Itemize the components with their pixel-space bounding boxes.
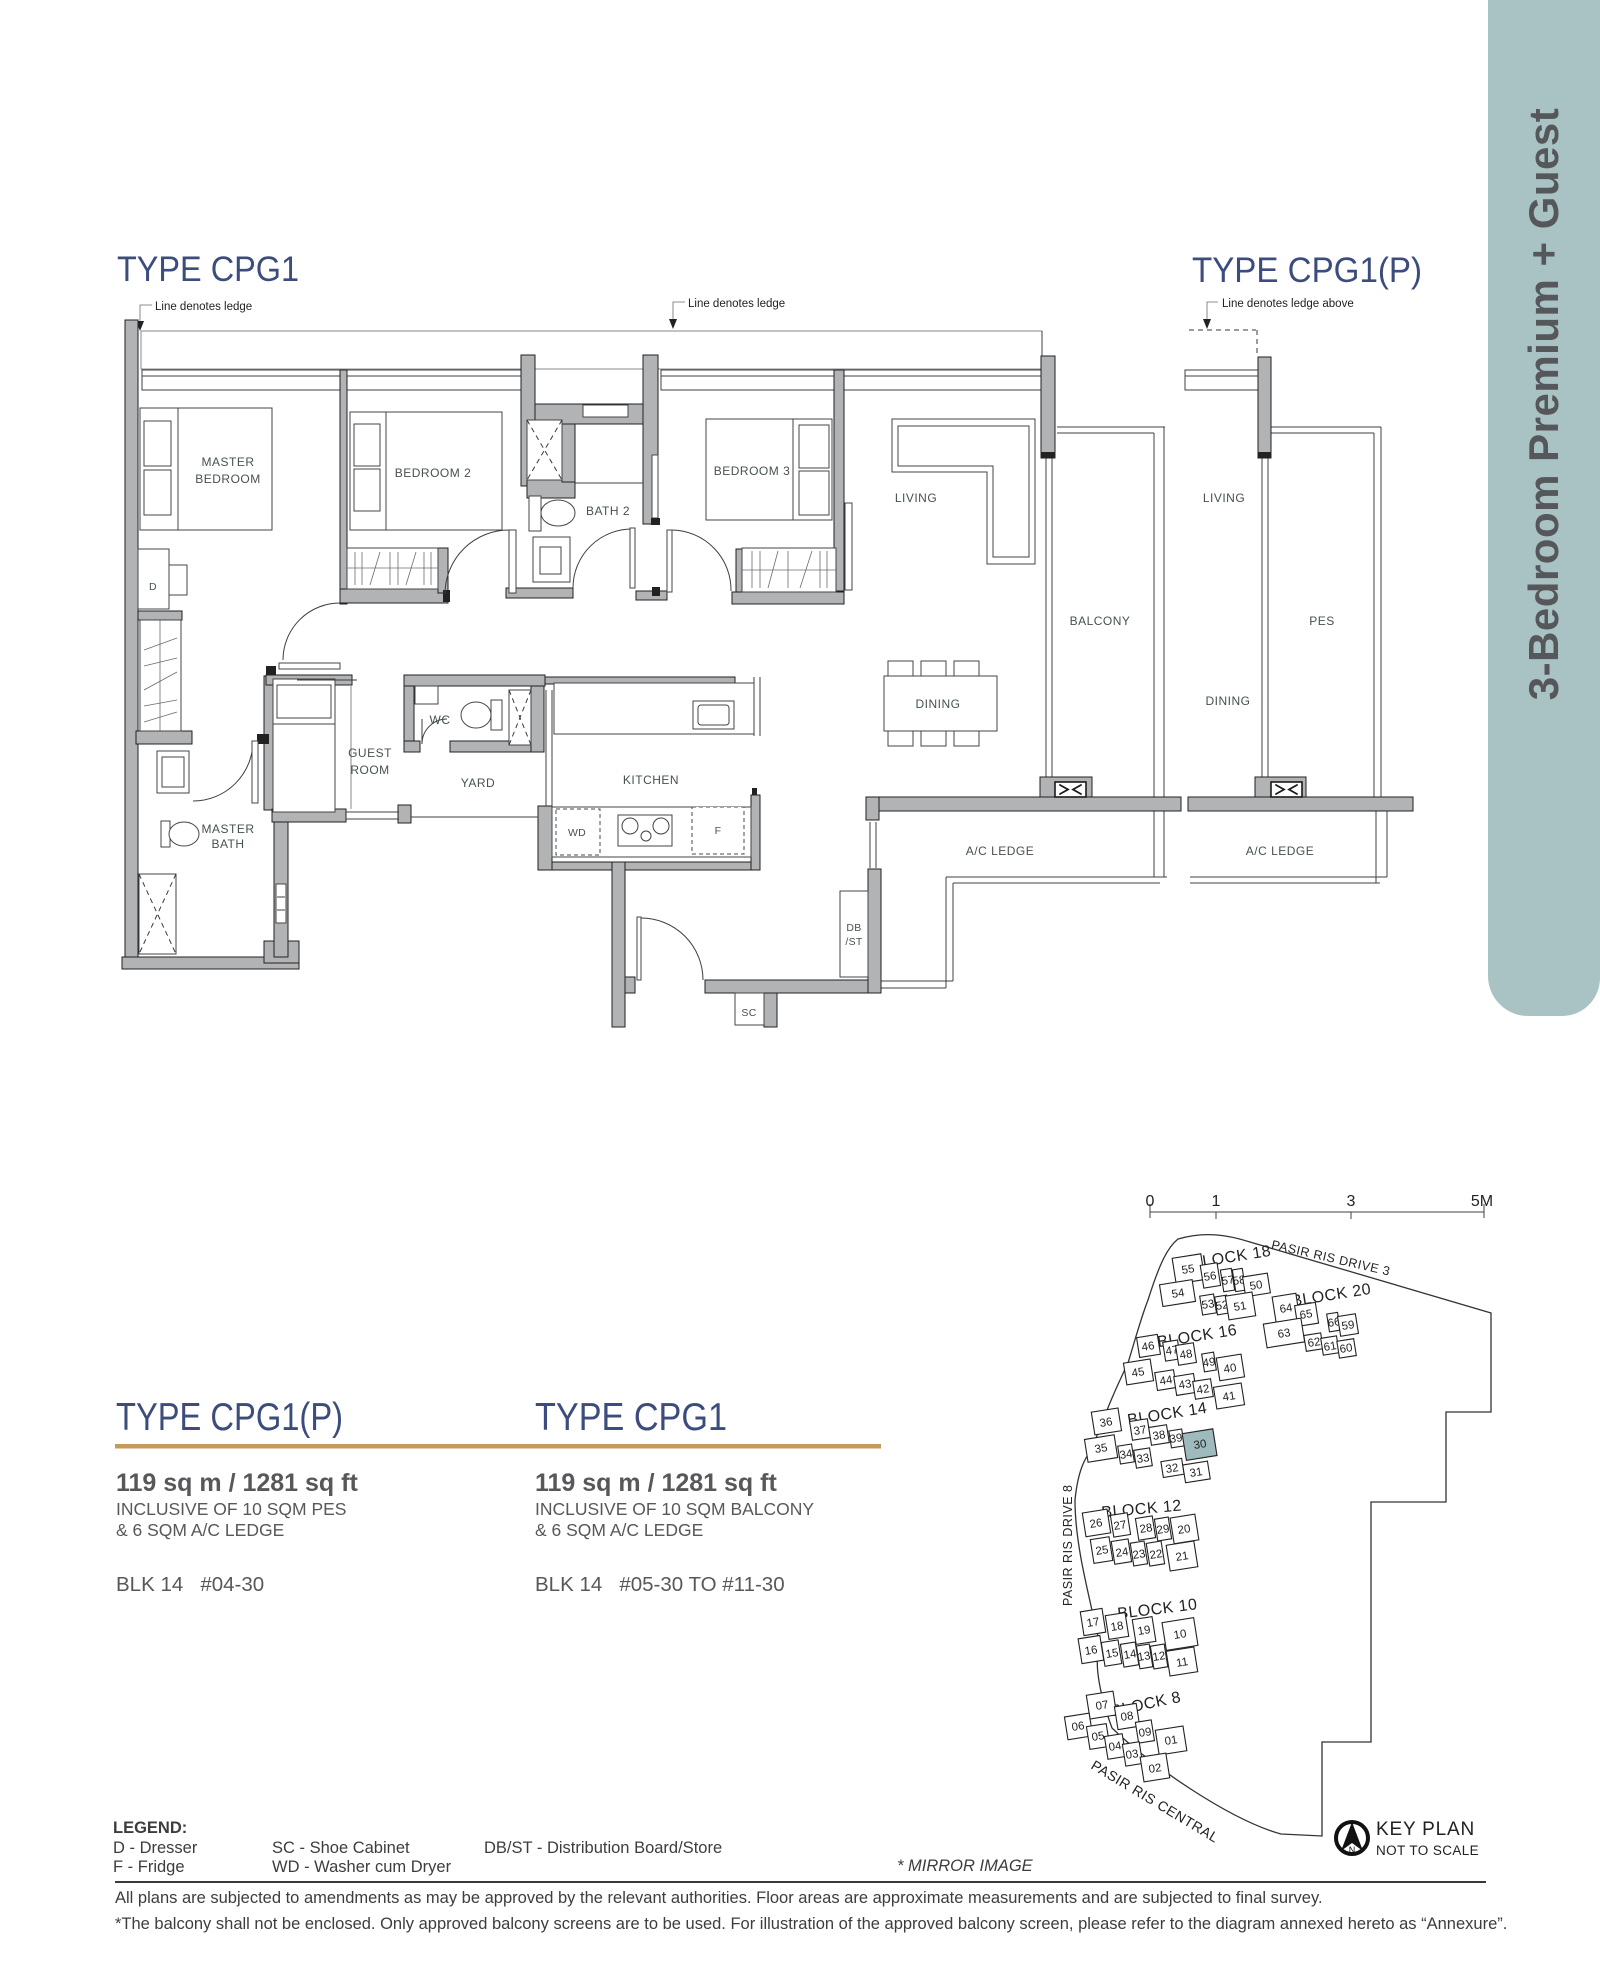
svg-text:BEDROOM 3: BEDROOM 3: [714, 464, 791, 478]
svg-text:20: 20: [1177, 1523, 1192, 1537]
svg-text:& 6 SQM A/C LEDGE: & 6 SQM A/C LEDGE: [116, 1520, 284, 1540]
svg-text:INCLUSIVE OF 10 SQM BALCONY: INCLUSIVE OF 10 SQM BALCONY: [535, 1499, 814, 1519]
svg-text:KEY PLAN: KEY PLAN: [1376, 1819, 1475, 1840]
svg-text:1: 1: [1212, 1193, 1221, 1210]
svg-text:GUEST: GUEST: [348, 746, 392, 760]
svg-text:04: 04: [1108, 1740, 1123, 1754]
svg-text:YARD: YARD: [461, 776, 495, 790]
svg-text:07: 07: [1095, 1699, 1110, 1713]
svg-text:28: 28: [1139, 1522, 1154, 1536]
svg-text:11: 11: [1175, 1656, 1189, 1670]
svg-text:SC - Shoe Cabinet: SC - Shoe Cabinet: [272, 1839, 410, 1857]
svg-text:TYPE CPG1(P): TYPE CPG1(P): [116, 1396, 343, 1439]
svg-text:43: 43: [1178, 1378, 1193, 1392]
svg-text:35: 35: [1094, 1442, 1109, 1456]
svg-text:63: 63: [1277, 1327, 1292, 1341]
svg-text:31: 31: [1189, 1466, 1204, 1480]
svg-text:WD - Washer cum Dryer: WD - Washer cum Dryer: [272, 1858, 452, 1876]
svg-text:26: 26: [1089, 1517, 1104, 1531]
svg-text:D: D: [149, 581, 157, 593]
svg-text:49: 49: [1202, 1356, 1217, 1370]
svg-text:34: 34: [1119, 1448, 1134, 1462]
svg-text:60: 60: [1339, 1342, 1354, 1356]
svg-text:13: 13: [1137, 1650, 1152, 1664]
svg-text:64: 64: [1279, 1302, 1294, 1316]
svg-text:05: 05: [1091, 1730, 1106, 1744]
svg-text:10: 10: [1173, 1628, 1188, 1642]
svg-text:119 sq m / 1281 sq ft: 119 sq m / 1281 sq ft: [535, 1469, 777, 1497]
svg-text:PASIR RIS DRIVE 8: PASIR RIS DRIVE 8: [1061, 1485, 1075, 1607]
svg-text:62: 62: [1307, 1336, 1322, 1350]
svg-text:PES: PES: [1309, 614, 1335, 628]
svg-text:BEDROOM: BEDROOM: [195, 472, 261, 486]
svg-text:56: 56: [1203, 1270, 1218, 1284]
svg-text:N: N: [1349, 1845, 1356, 1855]
svg-text:54: 54: [1171, 1287, 1186, 1301]
svg-text:40: 40: [1223, 1362, 1238, 1376]
svg-text:48: 48: [1179, 1348, 1194, 1362]
svg-text:5M: 5M: [1471, 1193, 1493, 1210]
svg-text:02: 02: [1148, 1762, 1163, 1776]
svg-text:3: 3: [1347, 1193, 1356, 1210]
svg-text:DB: DB: [846, 922, 861, 934]
svg-text:A/C LEDGE: A/C LEDGE: [1246, 844, 1315, 858]
svg-text:Line denotes ledge: Line denotes ledge: [155, 301, 252, 313]
svg-text:46: 46: [1141, 1340, 1156, 1354]
svg-text:21: 21: [1175, 1550, 1190, 1564]
svg-text:BLK 14 #04-30: BLK 14 #04-30: [116, 1573, 264, 1596]
svg-text:32: 32: [1165, 1462, 1180, 1476]
svg-text:TYPE CPG1: TYPE CPG1: [117, 250, 299, 289]
svg-text:SC: SC: [741, 1007, 756, 1019]
svg-text:44: 44: [1159, 1374, 1174, 1388]
svg-text:06: 06: [1071, 1720, 1086, 1734]
svg-text:WC: WC: [430, 713, 451, 727]
svg-text:51: 51: [1233, 1300, 1248, 1314]
svg-text:BATH 2: BATH 2: [586, 504, 630, 518]
svg-text:50: 50: [1249, 1279, 1264, 1293]
svg-text:WD: WD: [568, 827, 586, 839]
svg-text:01: 01: [1164, 1734, 1179, 1748]
svg-text:TYPE CPG1: TYPE CPG1: [535, 1396, 727, 1439]
svg-text:18: 18: [1110, 1620, 1125, 1634]
svg-text:22: 22: [1149, 1548, 1164, 1562]
svg-text:41: 41: [1222, 1390, 1237, 1404]
svg-text:DINING: DINING: [1206, 694, 1251, 708]
svg-text:25: 25: [1095, 1544, 1110, 1558]
svg-text:PASIR RIS DRIVE 3: PASIR RIS DRIVE 3: [1270, 1238, 1392, 1279]
svg-text:53: 53: [1201, 1298, 1216, 1312]
svg-text:29: 29: [1156, 1523, 1171, 1537]
svg-text:Line denotes ledge above: Line denotes ledge above: [1222, 298, 1354, 310]
svg-text:39: 39: [1169, 1432, 1184, 1446]
svg-text:MASTER: MASTER: [201, 822, 254, 836]
svg-text:DB/ST - Distribution Board/Sto: DB/ST - Distribution Board/Store: [484, 1839, 722, 1857]
svg-text:16: 16: [1084, 1644, 1099, 1658]
svg-text:61: 61: [1323, 1340, 1338, 1354]
svg-text:17: 17: [1086, 1616, 1101, 1630]
svg-text:45: 45: [1131, 1366, 1146, 1380]
svg-text:INCLUSIVE OF 10 SQM PES: INCLUSIVE OF 10 SQM PES: [116, 1499, 346, 1519]
svg-text:Line denotes ledge: Line denotes ledge: [688, 298, 785, 310]
svg-text:08: 08: [1120, 1710, 1135, 1724]
svg-text:NOT TO SCALE: NOT TO SCALE: [1376, 1843, 1479, 1858]
svg-text:KITCHEN: KITCHEN: [623, 773, 679, 787]
svg-text:BATH: BATH: [211, 837, 244, 851]
svg-text:DINING: DINING: [916, 697, 961, 711]
svg-text:33: 33: [1136, 1452, 1151, 1466]
svg-text:F - Fridge: F - Fridge: [113, 1858, 185, 1876]
svg-text:23: 23: [1132, 1548, 1147, 1562]
svg-text:*The balcony shall not be encl: *The balcony shall not be enclosed. Only…: [115, 1915, 1507, 1933]
svg-text:LIVING: LIVING: [895, 491, 937, 505]
svg-text:14: 14: [1123, 1648, 1138, 1662]
svg-text:MASTER: MASTER: [201, 455, 254, 469]
svg-text:37: 37: [1133, 1424, 1148, 1438]
svg-text:36: 36: [1099, 1416, 1114, 1430]
svg-text:LIVING: LIVING: [1203, 491, 1245, 505]
svg-text:LEGEND:: LEGEND:: [113, 1819, 187, 1837]
svg-text:BLK 14 #05-30 TO #11-30: BLK 14 #05-30 TO #11-30: [535, 1573, 785, 1596]
svg-text:12: 12: [1152, 1650, 1167, 1664]
svg-text:* MIRROR IMAGE: * MIRROR IMAGE: [897, 1857, 1034, 1875]
svg-text:D - Dresser: D - Dresser: [113, 1839, 198, 1857]
svg-text:119 sq m / 1281 sq ft: 119 sq m / 1281 sq ft: [116, 1469, 358, 1497]
svg-text:/ST: /ST: [845, 936, 863, 948]
svg-text:BEDROOM 2: BEDROOM 2: [395, 466, 472, 480]
svg-text:09: 09: [1138, 1726, 1153, 1740]
svg-text:All plans are subjected to ame: All plans are subjected to amendments as…: [115, 1889, 1323, 1907]
svg-text:59: 59: [1341, 1319, 1356, 1333]
svg-text:27: 27: [1113, 1519, 1128, 1533]
svg-text:ROOM: ROOM: [350, 763, 389, 777]
svg-text:15: 15: [1105, 1647, 1120, 1661]
svg-text:42: 42: [1196, 1383, 1211, 1397]
svg-text:24: 24: [1115, 1546, 1130, 1560]
svg-text:38: 38: [1152, 1429, 1167, 1443]
svg-text:F: F: [715, 825, 722, 837]
svg-text:19: 19: [1137, 1624, 1152, 1638]
svg-text:TYPE CPG1(P): TYPE CPG1(P): [1192, 251, 1422, 290]
svg-text:A/C LEDGE: A/C LEDGE: [966, 844, 1035, 858]
svg-text:BALCONY: BALCONY: [1070, 614, 1131, 628]
svg-text:30: 30: [1193, 1438, 1208, 1452]
svg-text:03: 03: [1125, 1748, 1140, 1762]
svg-text:55: 55: [1181, 1263, 1196, 1277]
svg-text:& 6 SQM A/C LEDGE: & 6 SQM A/C LEDGE: [535, 1520, 703, 1540]
